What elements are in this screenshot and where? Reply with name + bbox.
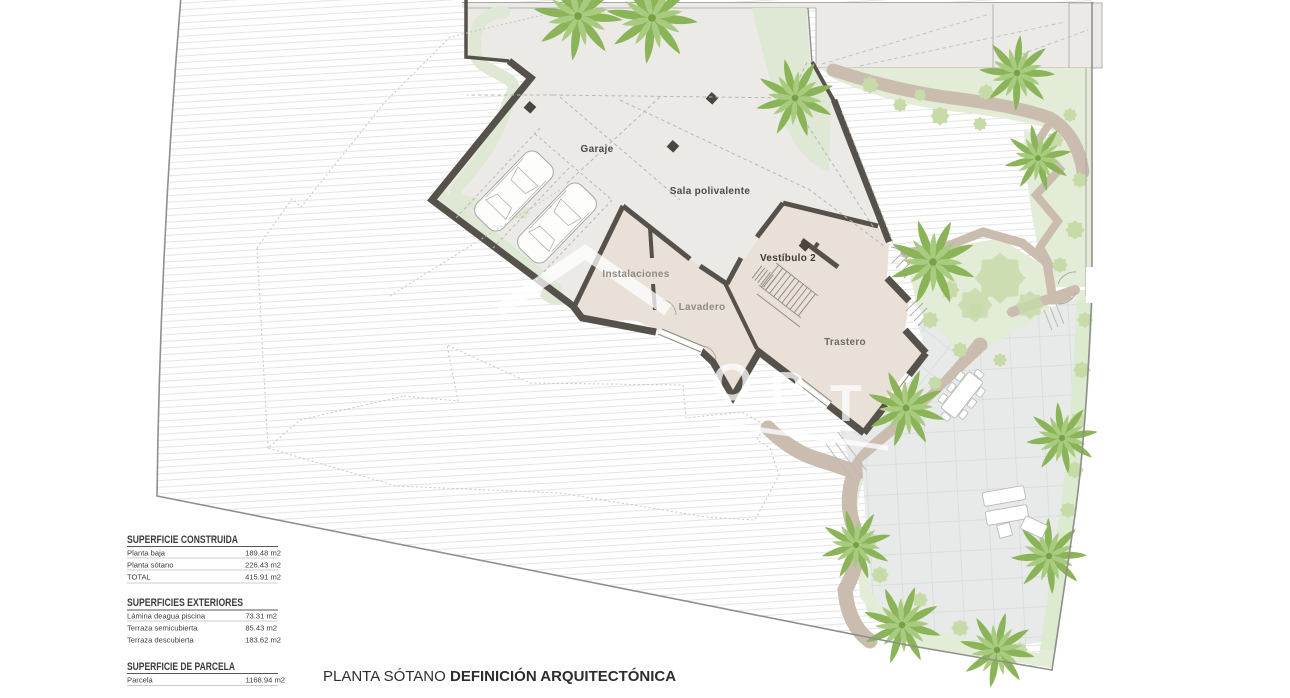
- svg-text:Garaje: Garaje: [581, 144, 614, 155]
- svg-text:Planta sótano: Planta sótano: [127, 561, 173, 570]
- svg-text:Instalaciones: Instalaciones: [602, 269, 669, 280]
- svg-text:P: P: [770, 362, 805, 420]
- svg-text:1168.94 m2: 1168.94 m2: [245, 676, 285, 685]
- svg-text:T: T: [830, 375, 862, 433]
- svg-text:PLANTA SÓTANO DEFINICIÓN ARQUI: PLANTA SÓTANO DEFINICIÓN ARQUITECTÓNICA: [323, 667, 676, 685]
- svg-text:226.43 m2: 226.43 m2: [245, 561, 281, 570]
- svg-text:183.62 m2: 183.62 m2: [245, 636, 281, 645]
- svg-text:Parcela: Parcela: [127, 676, 154, 685]
- svg-text:TOTAL: TOTAL: [127, 573, 151, 582]
- svg-text:73.31 m2: 73.31 m2: [245, 612, 277, 621]
- svg-text:189.48 m2: 189.48 m2: [245, 549, 281, 558]
- svg-text:Lavadero: Lavadero: [679, 302, 726, 313]
- svg-text:85.43 m2: 85.43 m2: [245, 624, 277, 633]
- svg-text:415.91 m2: 415.91 m2: [245, 573, 281, 582]
- svg-text:SUPERFICIE CONSTRUIDA: SUPERFICIE CONSTRUIDA: [127, 534, 238, 546]
- svg-text:SUPERFICIE DE PARCELA: SUPERFICIE DE PARCELA: [127, 661, 235, 673]
- svg-text:Lámina deagua piscina: Lámina deagua piscina: [127, 612, 206, 621]
- svg-text:Sala polivalente: Sala polivalente: [670, 186, 751, 197]
- svg-text:Terraza descubierta: Terraza descubierta: [127, 636, 194, 645]
- svg-text:Terraza semicubierta: Terraza semicubierta: [127, 624, 198, 633]
- svg-text:Planta baja: Planta baja: [127, 549, 166, 558]
- svg-text:O: O: [712, 354, 752, 412]
- svg-text:SUPERFICIES EXTERIORES: SUPERFICIES EXTERIORES: [127, 597, 243, 609]
- svg-text:Trastero: Trastero: [824, 337, 866, 348]
- svg-text:Vestíbulo 2: Vestíbulo 2: [760, 253, 816, 264]
